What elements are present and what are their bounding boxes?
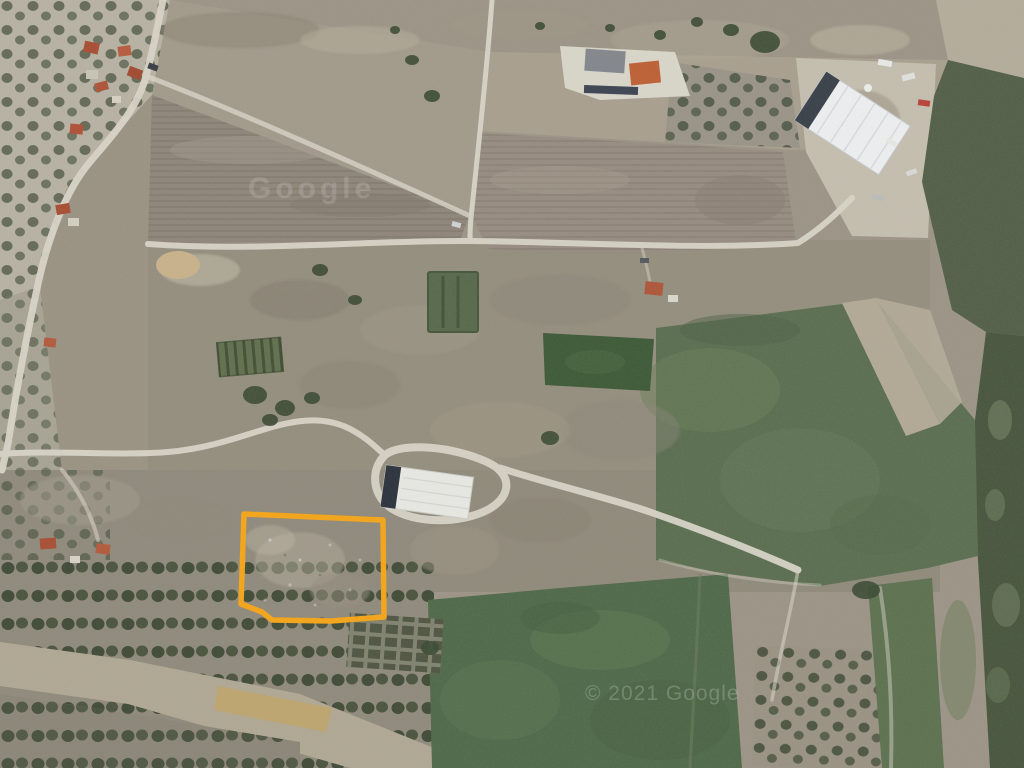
- photo-grain-overlay: [0, 0, 1024, 768]
- copyright-watermark: © 2021 Google: [585, 682, 740, 705]
- satellite-image-viewport: Google © 2021 Google: [0, 0, 1024, 768]
- google-watermark: Google: [248, 172, 375, 205]
- satellite-map-canvas[interactable]: Google © 2021 Google: [0, 0, 1024, 768]
